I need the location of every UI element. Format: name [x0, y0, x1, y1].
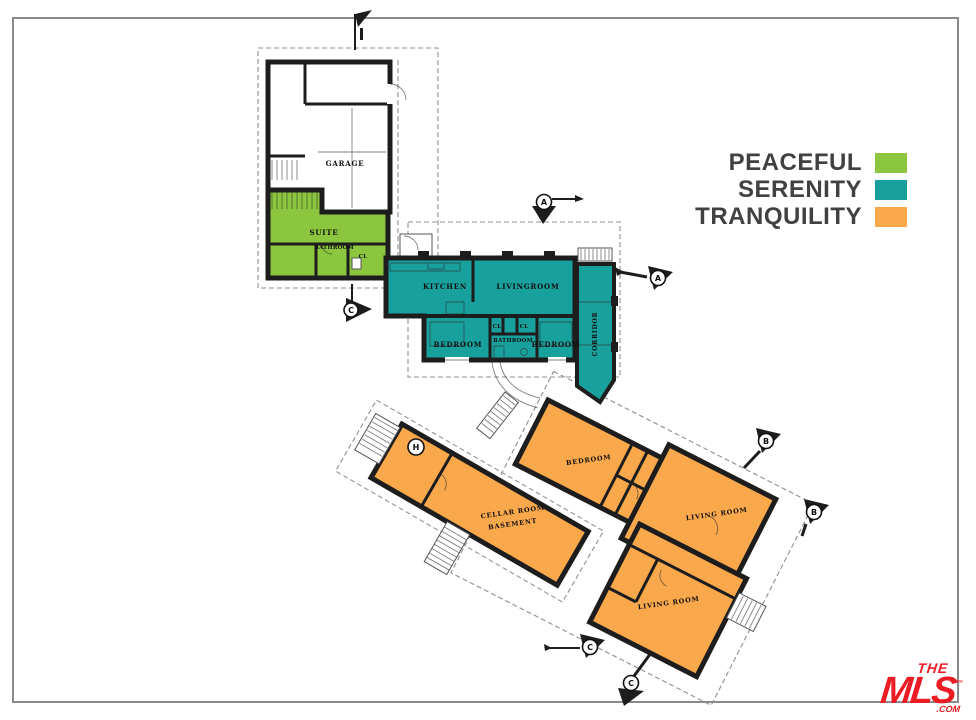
svg-text:A: A	[541, 198, 548, 207]
room-label-garage: GARAGE	[326, 159, 365, 168]
section-marker-a1: A	[532, 195, 584, 225]
room-label-closet-1: CL	[493, 324, 502, 330]
section-marker-c2: C	[544, 634, 605, 658]
svg-text:C: C	[587, 643, 593, 652]
legend-swatch-tranquility	[875, 207, 907, 227]
svg-text:B: B	[763, 437, 769, 446]
svg-text:C: C	[628, 679, 634, 688]
svg-text:A: A	[655, 274, 662, 283]
room-label-bedroom-1: BEDROOM	[434, 340, 483, 349]
room-label-suite-bathroom: BATHROOM	[314, 245, 354, 251]
section-marker-top-flag	[355, 10, 372, 50]
floor-plan-svg: GARAGE SUITE BATHROOM CL	[0, 0, 976, 720]
mls-logo-tm: ™	[955, 680, 963, 687]
legend-swatch-serenity	[875, 180, 907, 200]
h-marker-letter: H	[413, 443, 420, 452]
legend-label-peaceful: PEACEFUL	[729, 153, 862, 173]
svg-text:C: C	[348, 306, 354, 315]
room-label-closet-2: CL	[520, 324, 529, 330]
legend-label-serenity: SERENITY	[738, 180, 862, 200]
mls-logo: THE MLS™ .COM	[878, 663, 965, 714]
room-label-suite-closet: CL	[359, 254, 368, 260]
legend-swatch-peaceful	[875, 153, 907, 173]
section-marker-b2: B	[802, 499, 829, 536]
mls-logo-mls: MLS™	[879, 675, 964, 707]
legend-row-peaceful: PEACEFUL	[729, 153, 907, 173]
legend: PEACEFUL SERENITY TRANQUILITY	[695, 153, 907, 227]
section-marker-c1: C	[344, 284, 372, 322]
legend-row-serenity: SERENITY	[738, 180, 907, 200]
room-label-corridor: CORRIDOR	[592, 311, 599, 356]
room-label-bathroom: BATHROOM	[493, 338, 533, 344]
section-marker-b1: B	[744, 428, 781, 468]
room-label-bedroom-2: BEDROOM	[532, 340, 581, 349]
room-label-suite: SUITE	[310, 228, 339, 237]
room-label-livingroom: LIVINGROOM	[496, 282, 559, 291]
room-label-kitchen: KITCHEN	[423, 282, 467, 291]
legend-label-tranquility: TRANQUILITY	[695, 207, 862, 227]
legend-row-tranquility: TRANQUILITY	[695, 207, 907, 227]
section-marker-a2: A	[615, 266, 673, 290]
exterior-stairs-transition	[477, 362, 540, 439]
main-floor-section: KITCHEN LIVINGROOM CL CL BEDROOM BATHROO…	[386, 248, 618, 402]
floorplan-page: GARAGE SUITE BATHROOM CL	[0, 0, 976, 720]
svg-text:B: B	[811, 508, 817, 517]
